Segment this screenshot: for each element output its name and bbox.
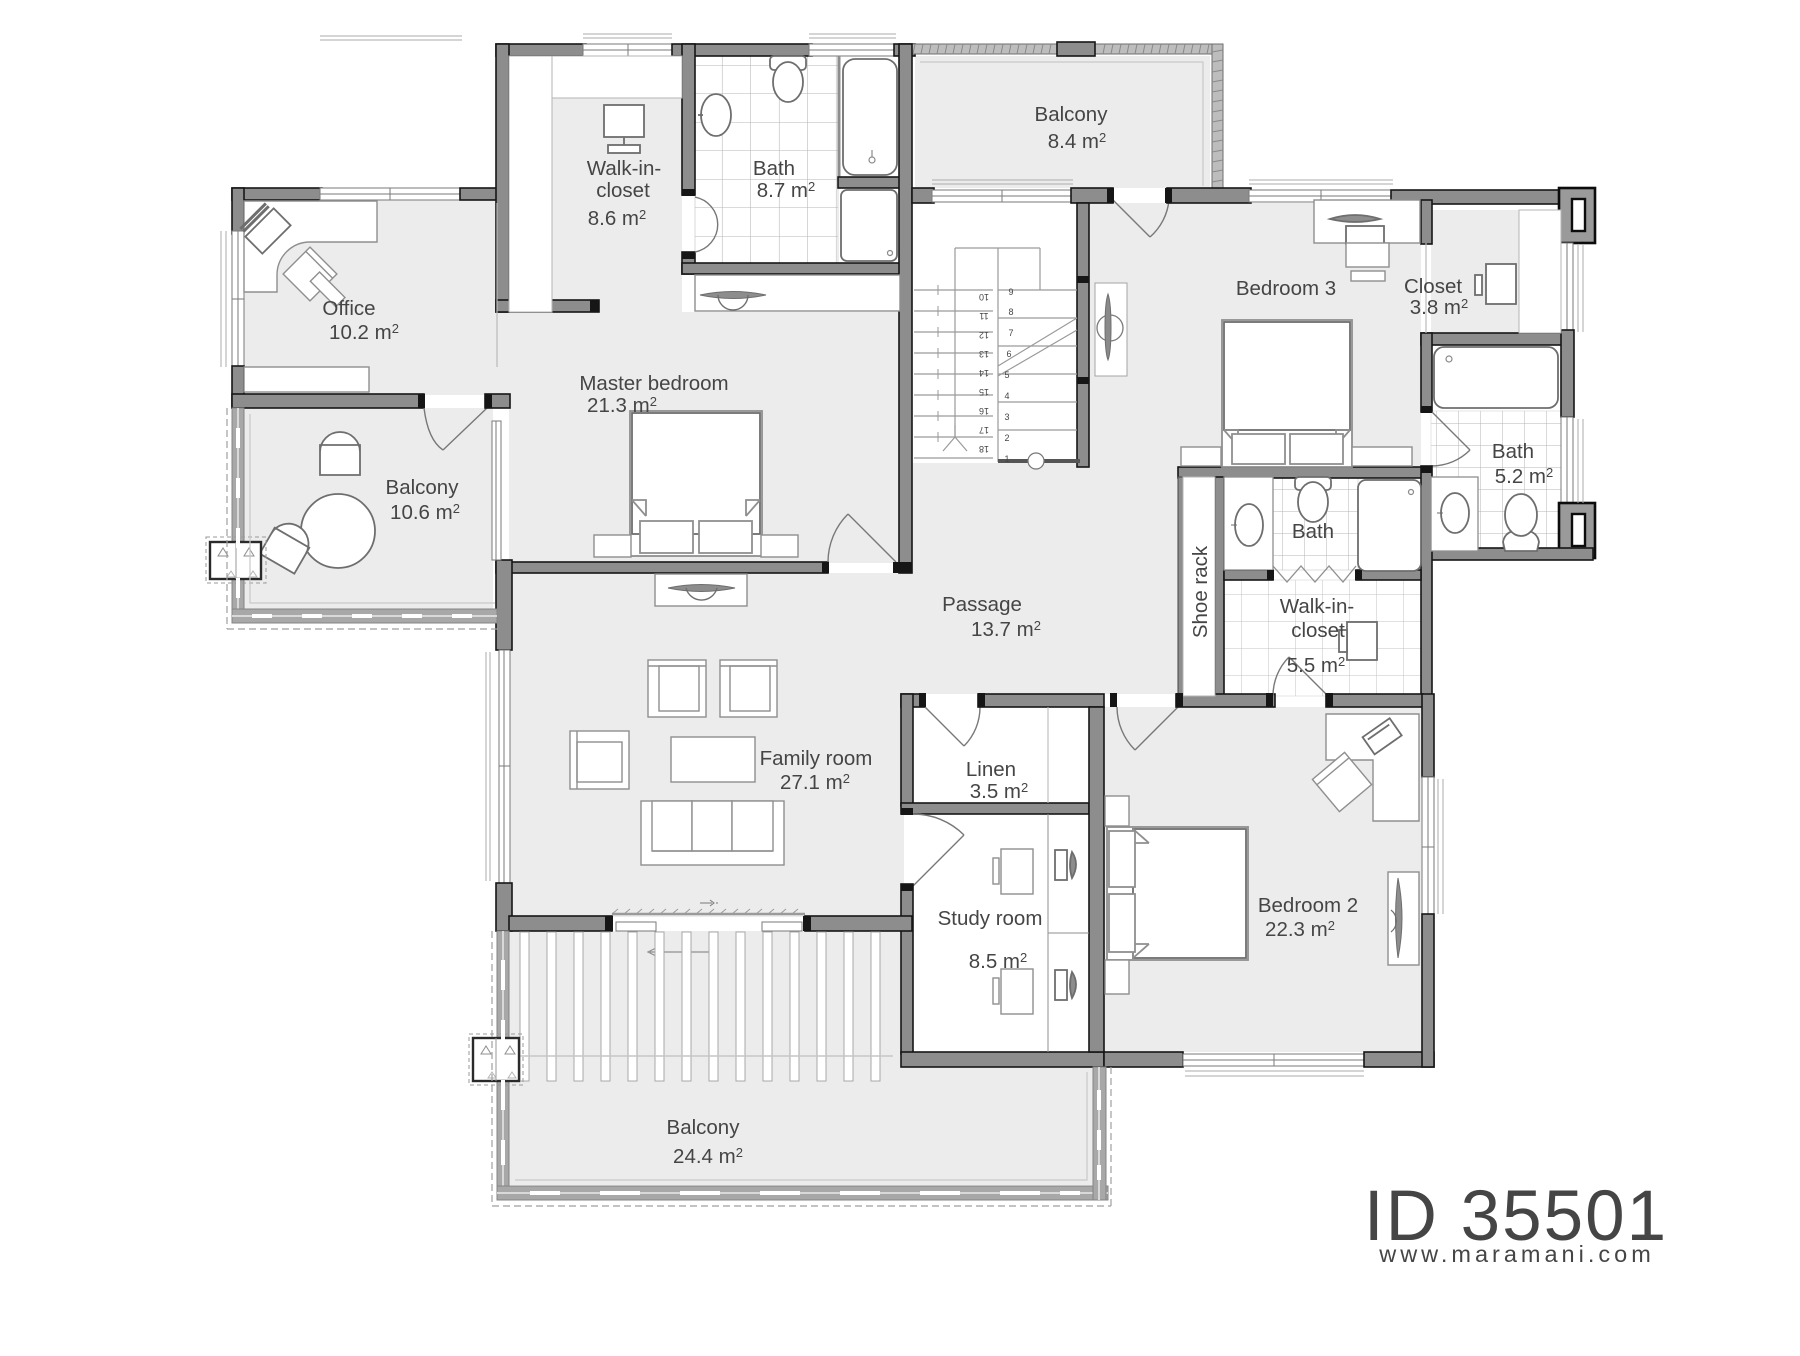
- svg-text:10.6 m2: 10.6 m2: [390, 501, 460, 524]
- svg-text:10: 10: [979, 292, 989, 302]
- svg-text:5.5 m2: 5.5 m2: [1287, 654, 1346, 677]
- svg-text:7: 7: [1008, 328, 1013, 338]
- svg-text:1: 1: [1004, 454, 1009, 464]
- svg-text:22.3 m2: 22.3 m2: [1265, 918, 1335, 941]
- svg-text:Bedroom 3: Bedroom 3: [1236, 277, 1336, 300]
- svg-text:6: 6: [1006, 349, 1011, 359]
- svg-text:Shoe rack: Shoe rack: [1189, 545, 1212, 638]
- svg-text:8.4 m2: 8.4 m2: [1048, 130, 1107, 153]
- svg-text:www.maramani.com: www.maramani.com: [1378, 1241, 1655, 1267]
- svg-text:8: 8: [1008, 307, 1013, 317]
- svg-text:Walk-in-: Walk-in-: [1280, 595, 1354, 618]
- svg-text:16: 16: [979, 406, 989, 416]
- svg-text:17: 17: [979, 425, 989, 435]
- svg-text:13: 13: [979, 349, 989, 359]
- svg-text:13.7 m2: 13.7 m2: [971, 618, 1041, 641]
- svg-text:Bath: Bath: [1292, 520, 1334, 543]
- svg-text:Family room: Family room: [760, 747, 873, 770]
- svg-text:Master bedroom: Master bedroom: [579, 372, 728, 395]
- svg-text:Linen: Linen: [966, 758, 1016, 781]
- svg-text:8.6 m2: 8.6 m2: [588, 207, 647, 230]
- svg-text:3.5 m2: 3.5 m2: [970, 780, 1029, 803]
- svg-text:8.5 m2: 8.5 m2: [969, 950, 1028, 973]
- svg-text:9: 9: [1008, 287, 1013, 297]
- svg-text:5: 5: [1004, 370, 1009, 380]
- svg-text:Bath: Bath: [1492, 440, 1534, 463]
- svg-text:Study room: Study room: [938, 907, 1043, 930]
- svg-text:Balcony: Balcony: [386, 476, 460, 499]
- svg-text:14: 14: [979, 368, 989, 378]
- svg-text:21.3 m2: 21.3 m2: [587, 394, 657, 417]
- svg-text:Office: Office: [322, 297, 375, 320]
- svg-text:4: 4: [1004, 391, 1009, 401]
- svg-text:closet: closet: [1291, 619, 1345, 642]
- svg-text:Passage: Passage: [942, 593, 1022, 616]
- svg-text:Balcony: Balcony: [1035, 103, 1109, 126]
- svg-text:11: 11: [979, 311, 988, 321]
- svg-text:27.1 m2: 27.1 m2: [780, 771, 850, 794]
- svg-text:2: 2: [1004, 433, 1009, 443]
- svg-text:Bath: Bath: [753, 157, 795, 180]
- svg-text:Closet: Closet: [1404, 275, 1462, 298]
- svg-text:12: 12: [979, 330, 989, 340]
- svg-text:Bedroom 2: Bedroom 2: [1258, 894, 1358, 917]
- svg-text:3.8 m2: 3.8 m2: [1410, 296, 1469, 319]
- svg-text:24.4 m2: 24.4 m2: [673, 1145, 743, 1168]
- svg-text:8.7 m2: 8.7 m2: [757, 179, 816, 202]
- svg-text:15: 15: [979, 387, 989, 397]
- svg-text:18: 18: [979, 444, 989, 454]
- svg-text:closet: closet: [596, 179, 650, 202]
- svg-text:Walk-in-: Walk-in-: [587, 157, 661, 180]
- svg-text:10.2 m2: 10.2 m2: [329, 321, 399, 344]
- svg-text:Balcony: Balcony: [667, 1116, 741, 1139]
- svg-text:5.2 m2: 5.2 m2: [1495, 465, 1554, 488]
- svg-text:3: 3: [1004, 412, 1009, 422]
